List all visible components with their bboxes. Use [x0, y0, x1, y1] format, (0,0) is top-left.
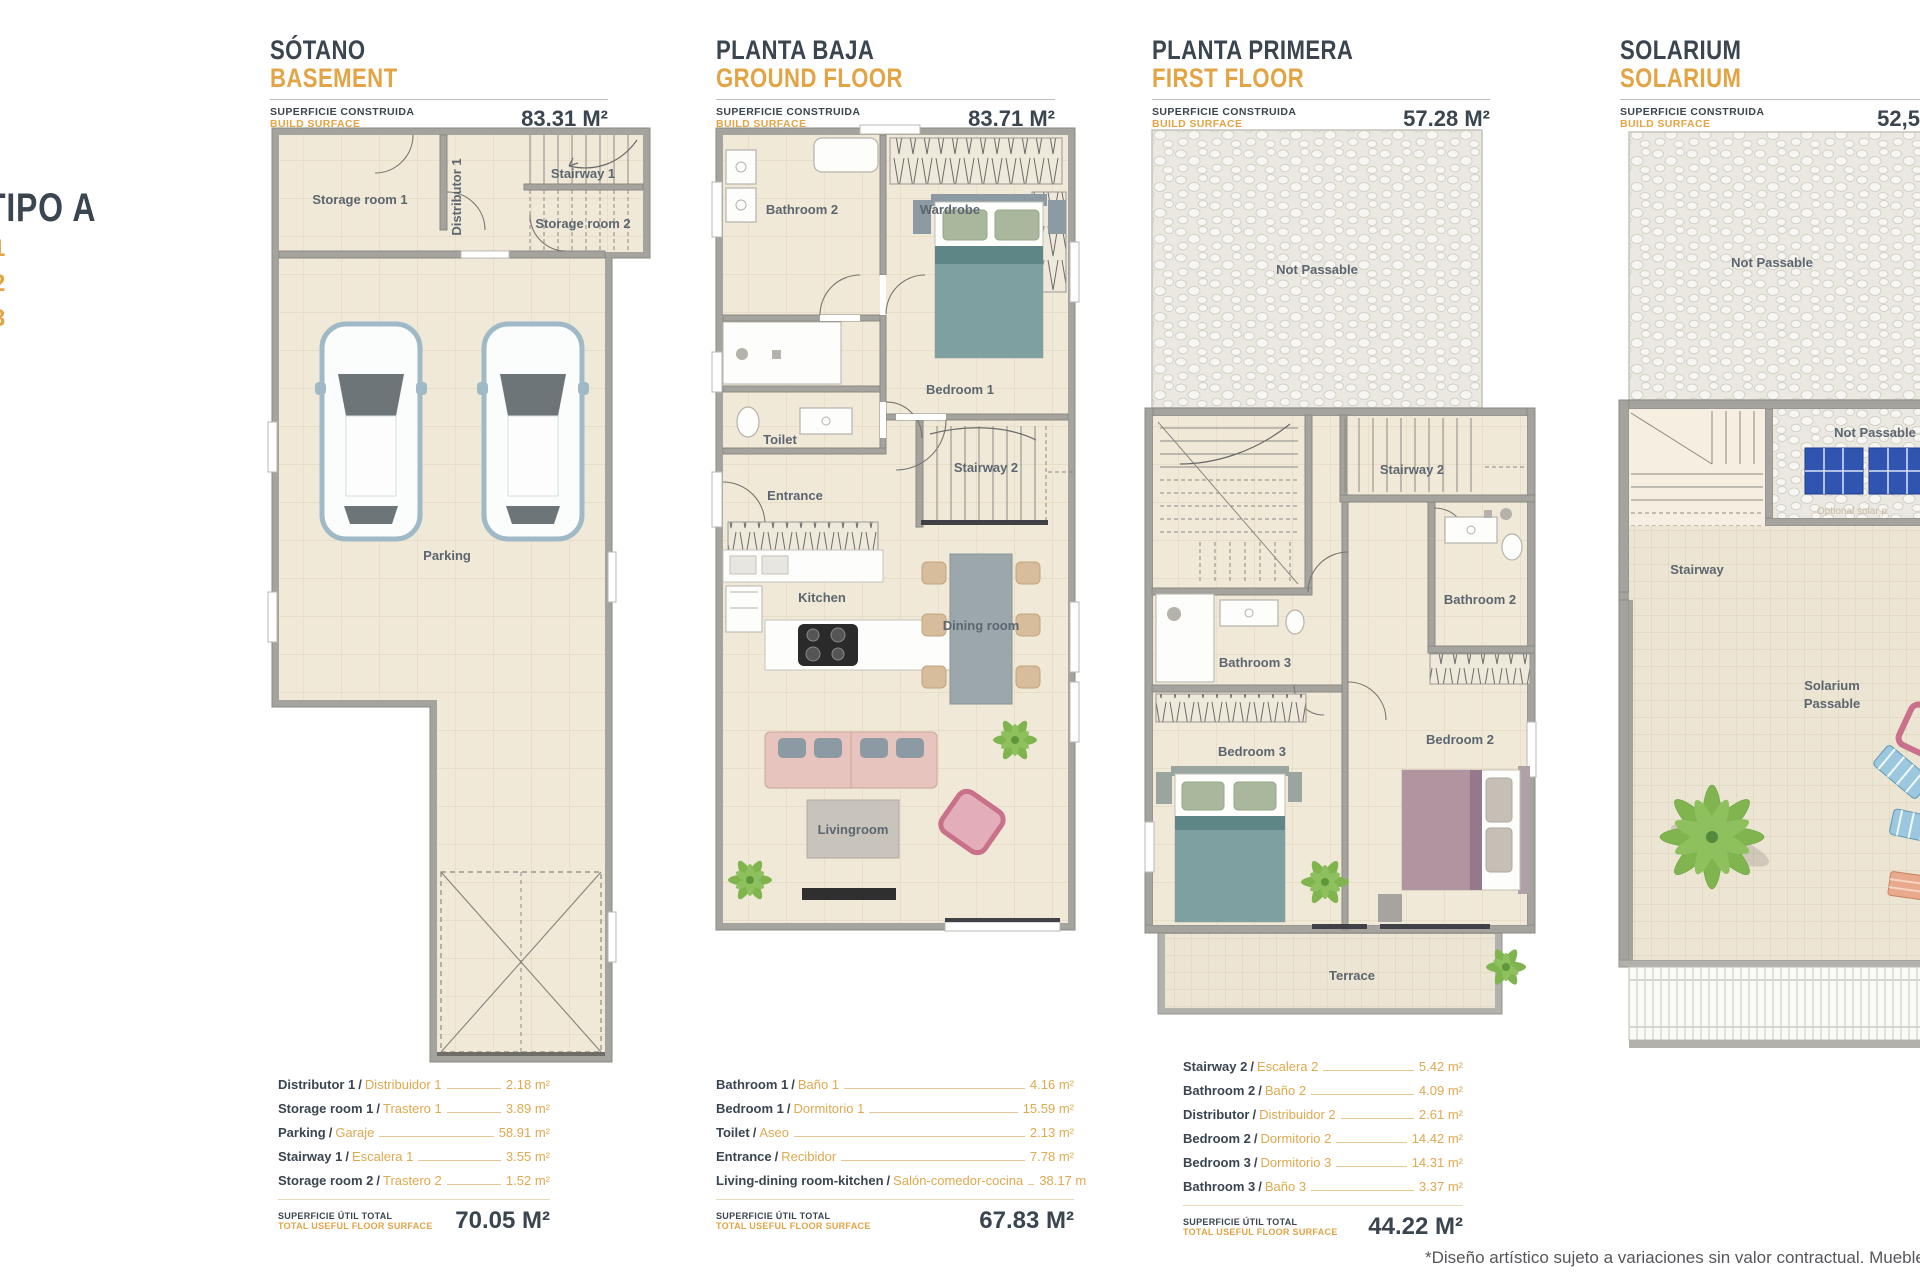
bed	[913, 194, 1066, 358]
room-label: Distributor 1	[449, 158, 464, 235]
room-label: Stairway	[1670, 562, 1724, 577]
sofa	[765, 732, 937, 788]
table-row: Storage room 2/Trastero 2 1.52 m²	[278, 1174, 550, 1189]
table-row: Bathroom 3/Baño 3 3.37 m²	[1183, 1180, 1463, 1195]
room-label: Not Passable	[1276, 262, 1358, 277]
room-label: Livingroom	[818, 822, 889, 837]
table-row: Distributor 1/Distribuidor 1 2.18 m²	[278, 1078, 550, 1093]
room-label: Storage room 2	[535, 216, 630, 231]
basement-title-en: BASEMENT	[270, 64, 547, 92]
table-row: Bedroom 2/Dormitorio 2 14.42 m²	[1183, 1132, 1463, 1147]
room-label: Bedroom 3	[1218, 744, 1286, 759]
table-row: Toilet/Aseo 2.13 m²	[716, 1126, 1074, 1141]
variant-2: 2	[0, 266, 124, 301]
table-row: Stairway 1/Escalera 1 3.55 m²	[278, 1150, 550, 1165]
room-label: Bathroom 2	[1444, 592, 1516, 607]
divider	[716, 99, 1055, 100]
solar-panels	[1805, 448, 1920, 494]
room-label: Bedroom 2	[1426, 732, 1494, 747]
car	[315, 324, 427, 539]
table-row: Bedroom 3/Dormitorio 3 14.31 m²	[1183, 1156, 1463, 1171]
solarium-header: SOLARIUM SOLARIUM SUPERFICIE CONSTRUIDA …	[1620, 36, 1920, 132]
car	[477, 324, 589, 539]
solar-note: Optional solar p	[1817, 506, 1887, 517]
total-label-en: TOTAL USEFUL FLOOR SURFACE	[716, 1221, 871, 1231]
pergola	[1629, 967, 1920, 1048]
table-row: Bedroom 1/Dormitorio 1 15.59 m²	[716, 1102, 1074, 1117]
surface-label-es: SUPERFICIE CONSTRUIDA	[716, 106, 860, 118]
first-plan: Not Passable Stairway 2 Bathroom 2 Bathr…	[1140, 122, 1540, 1022]
type-label-block: TIPO A 1 2 3	[0, 186, 124, 336]
basement-plan: Storage room 1 Distributor 1 Stairway 1 …	[265, 122, 660, 1072]
basement-total: 70.05 M²	[455, 1207, 550, 1235]
variant-1: 1	[0, 231, 124, 266]
room-label: Storage room 1	[312, 192, 407, 207]
room-label: Toilet	[763, 432, 797, 447]
ground-total: 67.83 M²	[979, 1207, 1074, 1235]
ground-title-es: PLANTA BAJA	[716, 36, 994, 64]
room-label: Parking	[423, 548, 471, 563]
room-label: Entrance	[767, 488, 823, 503]
table-row: Entrance/Recibidor 7.78 m²	[716, 1150, 1074, 1165]
room-label: Terrace	[1329, 968, 1375, 983]
total-label-es: SUPERFICIE ÚTIL TOTAL	[716, 1211, 871, 1221]
first-header: PLANTA PRIMERA FIRST FLOOR SUPERFICIE CO…	[1152, 36, 1490, 132]
total-label-es: SUPERFICIE ÚTIL TOTAL	[278, 1211, 433, 1221]
first-total: 44.22 M²	[1368, 1213, 1463, 1241]
first-area-table: Stairway 2/Escalera 2 5.42 m² Bathroom 2…	[1183, 1060, 1463, 1241]
disclaimer: *Diseño artístico sujeto a variaciones s…	[1425, 1248, 1920, 1268]
surface-label-es: SUPERFICIE CONSTRUIDA	[1620, 106, 1764, 118]
total-label-es: SUPERFICIE ÚTIL TOTAL	[1183, 1217, 1338, 1227]
divider	[1620, 99, 1920, 100]
divider	[1152, 99, 1490, 100]
ground-area-table: Bathroom 1/Baño 1 4.16 m² Bedroom 1/Dorm…	[716, 1078, 1074, 1235]
surface-label-es: SUPERFICIE CONSTRUIDA	[1152, 106, 1296, 118]
ground-header: PLANTA BAJA GROUND FLOOR SUPERFICIE CONS…	[716, 36, 1055, 132]
table-row: Distributor/Distribuidor 2 2.61 m²	[1183, 1108, 1463, 1123]
table-row: Bathroom 2/Baño 2 4.09 m²	[1183, 1084, 1463, 1099]
room-label: Stairway 2	[954, 460, 1018, 475]
room-label: Stairway 2	[1380, 462, 1444, 477]
room-label: Passable	[1804, 696, 1860, 711]
table-row: Storage room 1/Trastero 1 3.89 m²	[278, 1102, 550, 1117]
room-label: Bedroom 1	[926, 382, 994, 397]
basement-header: SÓTANO BASEMENT SUPERFICIE CONSTRUIDA BU…	[270, 36, 608, 132]
basement-area-table: Distributor 1/Distribuidor 1 2.18 m² Sto…	[278, 1078, 550, 1235]
total-label-en: TOTAL USEFUL FLOOR SURFACE	[278, 1221, 433, 1231]
solarium-plan: Not Passable Not Passable Optional solar…	[1617, 122, 1920, 1052]
ground-plan: Bathroom 2 Wardrobe Toilet Bedroom 1 Ent…	[710, 122, 1085, 937]
room-label: Dining room	[943, 618, 1020, 633]
floorplan-sheet: TIPO A 1 2 3 SÓTANO BASEMENT SUPERFICIE …	[0, 0, 1920, 1280]
table-row: Stairway 2/Escalera 2 5.42 m²	[1183, 1060, 1463, 1075]
first-title-es: PLANTA PRIMERA	[1152, 36, 1429, 64]
ground-title-en: GROUND FLOOR	[716, 64, 994, 92]
table-row: Parking/Garaje 58.91 m²	[278, 1126, 550, 1141]
room-label: Wardrobe	[920, 202, 980, 217]
basement-title-es: SÓTANO	[270, 36, 547, 64]
bed	[1156, 766, 1302, 922]
tv	[802, 888, 896, 900]
table-row: Living-dining room-kitchen/Salón-comedor…	[716, 1174, 1074, 1189]
table-row: Bathroom 1/Baño 1 4.16 m²	[716, 1078, 1074, 1093]
room-label: Bathroom 3	[1219, 655, 1291, 670]
room-label: Not Passable	[1731, 255, 1813, 270]
type-title: TIPO A	[0, 186, 96, 231]
first-title-en: FIRST FLOOR	[1152, 64, 1429, 92]
room-label: Stairway 1	[551, 166, 615, 181]
divider	[270, 99, 608, 100]
room-label: Solarium	[1804, 678, 1860, 693]
variant-3: 3	[0, 301, 124, 336]
total-label-en: TOTAL USEFUL FLOOR SURFACE	[1183, 1227, 1338, 1237]
solarium-title-es: SOLARIUM	[1620, 36, 1866, 64]
room-label: Kitchen	[798, 590, 846, 605]
room-label: Not Passable	[1834, 425, 1916, 440]
surface-label-es: SUPERFICIE CONSTRUIDA	[270, 106, 414, 118]
solarium-title-en: SOLARIUM	[1620, 64, 1866, 92]
room-label: Bathroom 2	[766, 202, 838, 217]
